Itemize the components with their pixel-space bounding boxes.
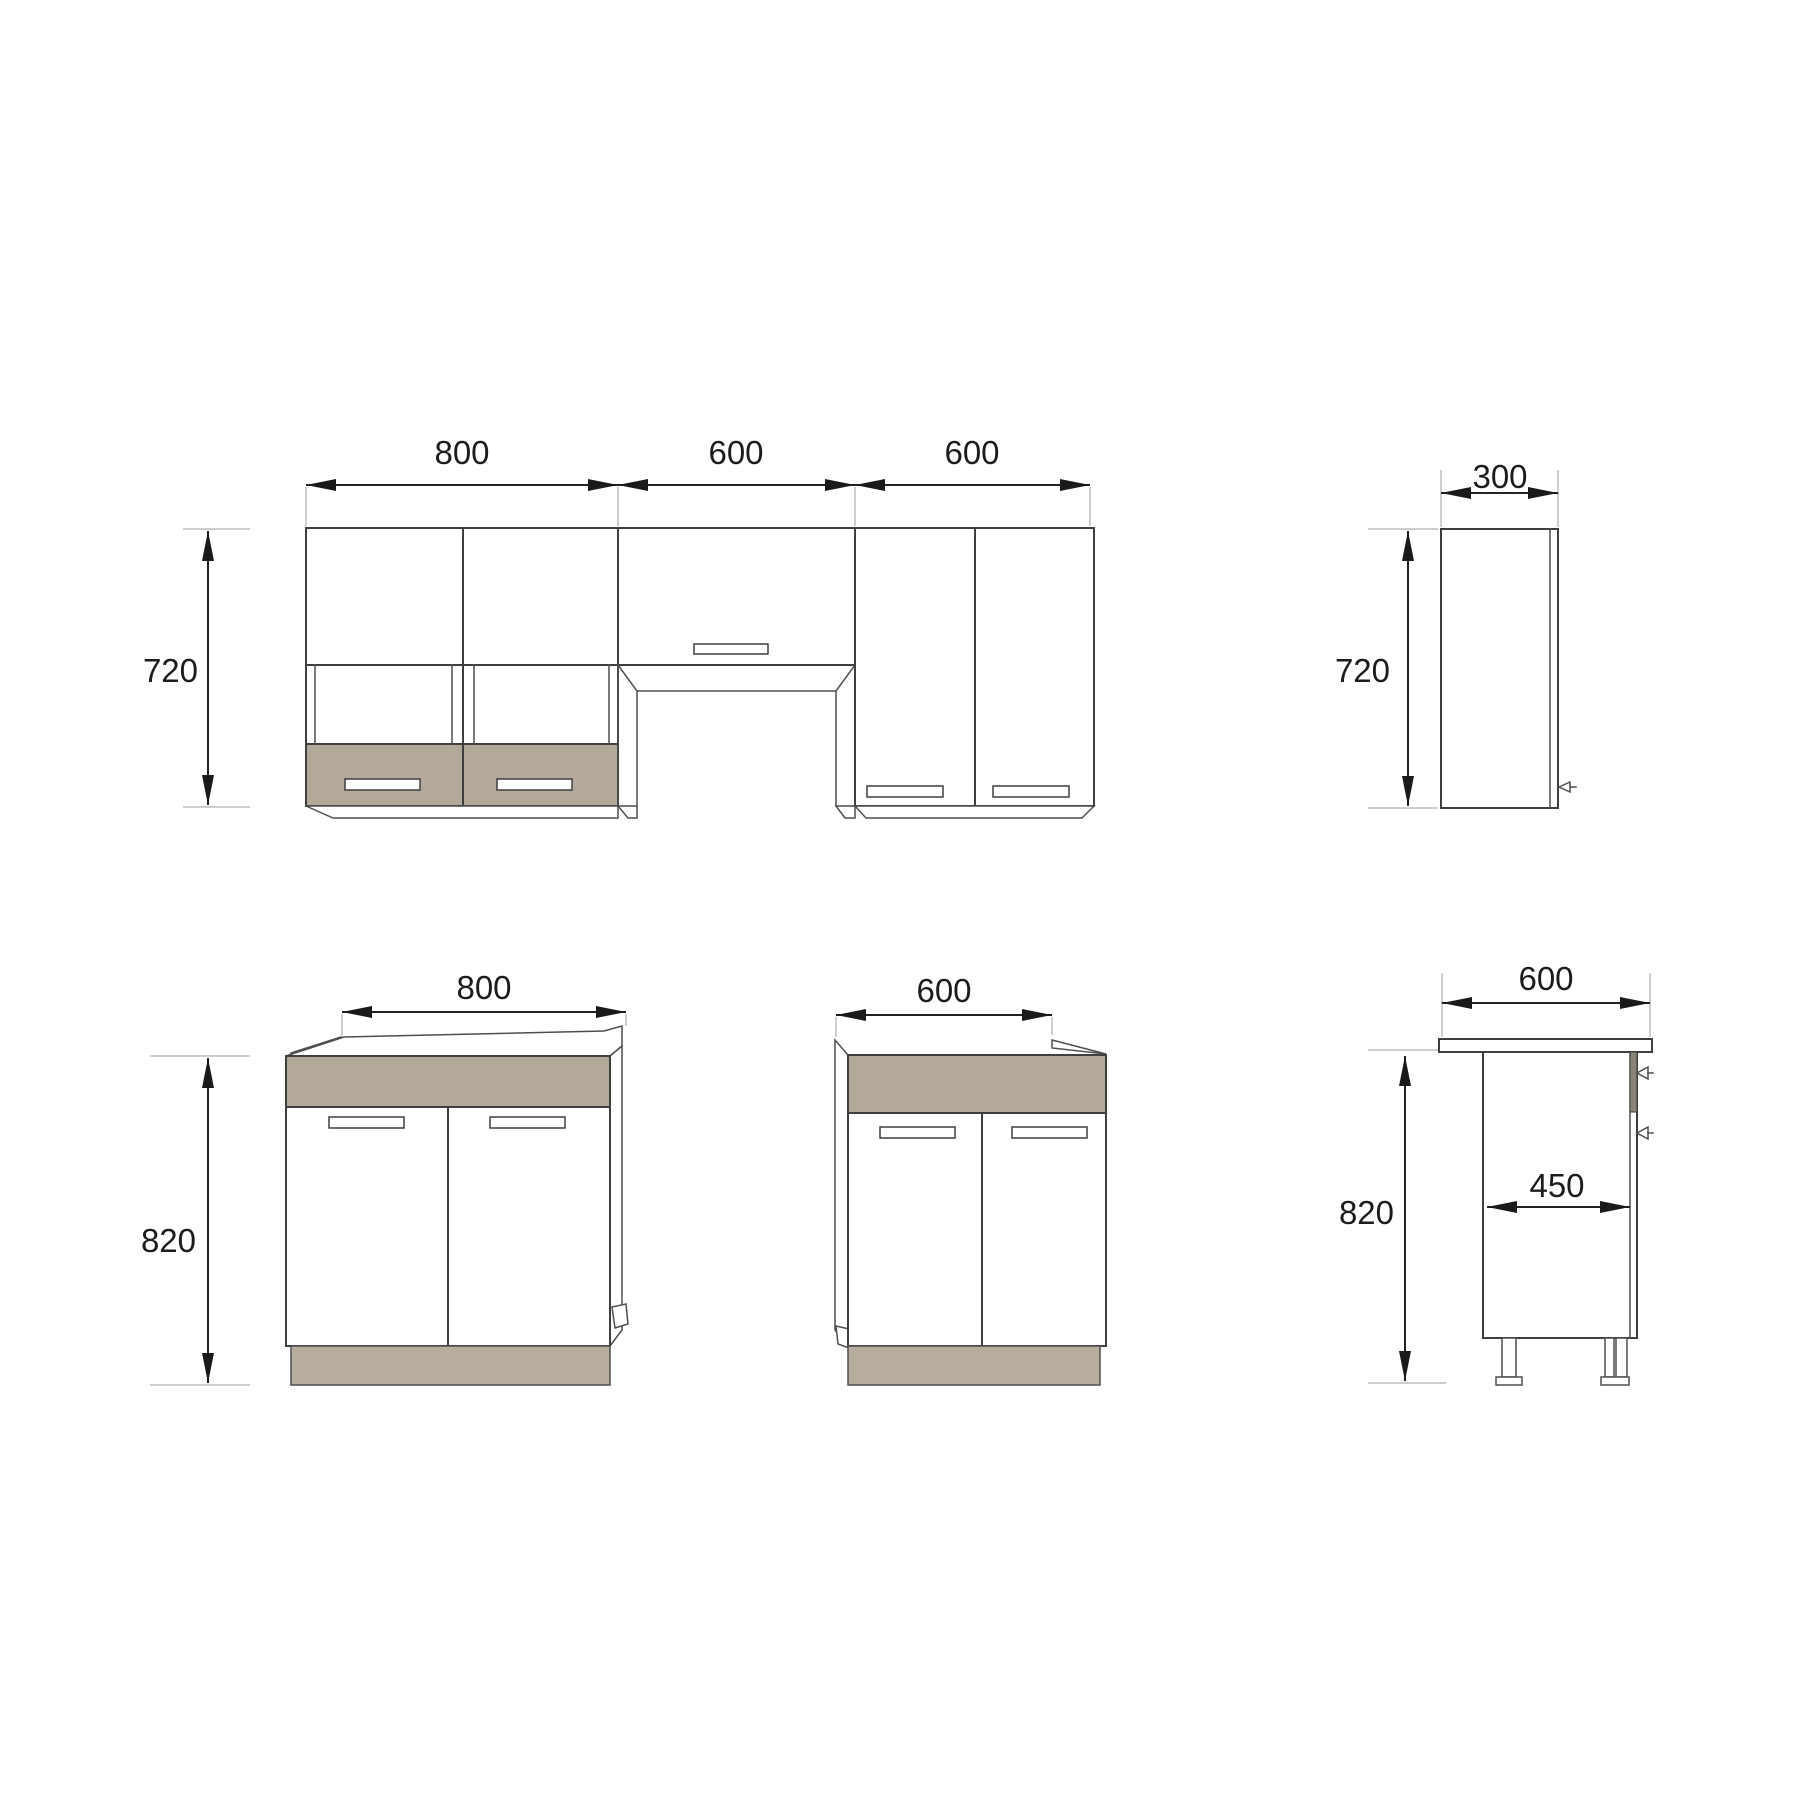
door-handle <box>345 779 420 790</box>
dim-label-wall-depth-300: 300 <box>1472 458 1527 495</box>
door-handle <box>497 779 572 790</box>
plinth <box>848 1346 1100 1385</box>
cabinet-side-outline <box>1441 529 1558 808</box>
side-panel <box>610 1046 622 1346</box>
dim-label-baseside-depth-600: 600 <box>1518 960 1573 997</box>
fitting-icon <box>1637 1067 1648 1079</box>
dim-label-base600-width: 600 <box>916 972 971 1009</box>
view-wall-cabinet-side: 300 720 <box>1335 458 1576 808</box>
wall-cabinet-800 <box>306 528 618 818</box>
door-handle <box>880 1127 955 1138</box>
front-leg <box>1502 1338 1516 1377</box>
fitting-icon <box>1637 1127 1648 1139</box>
door-handle <box>1012 1127 1087 1138</box>
top-drawer-panel <box>848 1055 1106 1113</box>
cabinet-dimension-drawing: 800 600 600 720 <box>0 0 1800 1800</box>
back-leg <box>1616 1338 1627 1377</box>
drawing-canvas: 800 600 600 720 <box>0 0 1800 1800</box>
dim-label-wall-height-720: 720 <box>143 652 198 689</box>
view-base-cabinet-side: 600 820 450 <box>1339 960 1653 1385</box>
wall-cabinet-600 <box>855 528 1094 818</box>
front-leg-foot <box>1496 1377 1522 1385</box>
wall-cabinet-hood-600 <box>618 528 855 818</box>
dim-label-wall-width-800: 800 <box>434 434 489 471</box>
countertop <box>1439 1039 1652 1052</box>
bottom-bevel <box>855 806 1094 818</box>
dim-label-base800-height: 820 <box>141 1222 196 1259</box>
view-base-cabinet-800-front: 800 820 <box>141 969 628 1385</box>
doors-outline <box>848 1113 1106 1346</box>
sink-upstand <box>1052 1040 1106 1054</box>
hood-opening <box>618 665 855 806</box>
bottom-bevel <box>836 806 855 818</box>
back-leg <box>1605 1338 1614 1377</box>
plinth <box>291 1346 610 1385</box>
dim-label-baseside-inner-450: 450 <box>1529 1167 1584 1204</box>
mounting-rail <box>1630 1052 1637 1112</box>
door-handle <box>490 1117 565 1128</box>
wall-bracket-icon <box>1559 782 1570 792</box>
side-panel <box>835 1040 848 1346</box>
door-handle <box>867 786 943 797</box>
view-wall-cabinets-front: 800 600 600 720 <box>143 434 1094 818</box>
extension-lines <box>836 1017 1052 1037</box>
dim-label-baseside-height-820: 820 <box>1339 1194 1394 1231</box>
bottom-bevel <box>306 806 618 818</box>
dim-label-wall-width-600a: 600 <box>708 434 763 471</box>
sink-upstand <box>286 1026 622 1056</box>
top-drawer-panel <box>286 1056 610 1107</box>
leg-foot-icon <box>612 1304 628 1328</box>
bottom-bevel <box>618 806 637 818</box>
back-leg-foot <box>1601 1377 1629 1385</box>
door-handle <box>993 786 1069 797</box>
view-base-cabinet-600-front: 600 <box>835 972 1106 1385</box>
dim-label-wall-width-600b: 600 <box>944 434 999 471</box>
dim-label-wall-side-height-720: 720 <box>1335 652 1390 689</box>
door-handle <box>329 1117 404 1128</box>
dim-label-base800-width: 800 <box>456 969 511 1006</box>
door-handle <box>694 644 768 654</box>
